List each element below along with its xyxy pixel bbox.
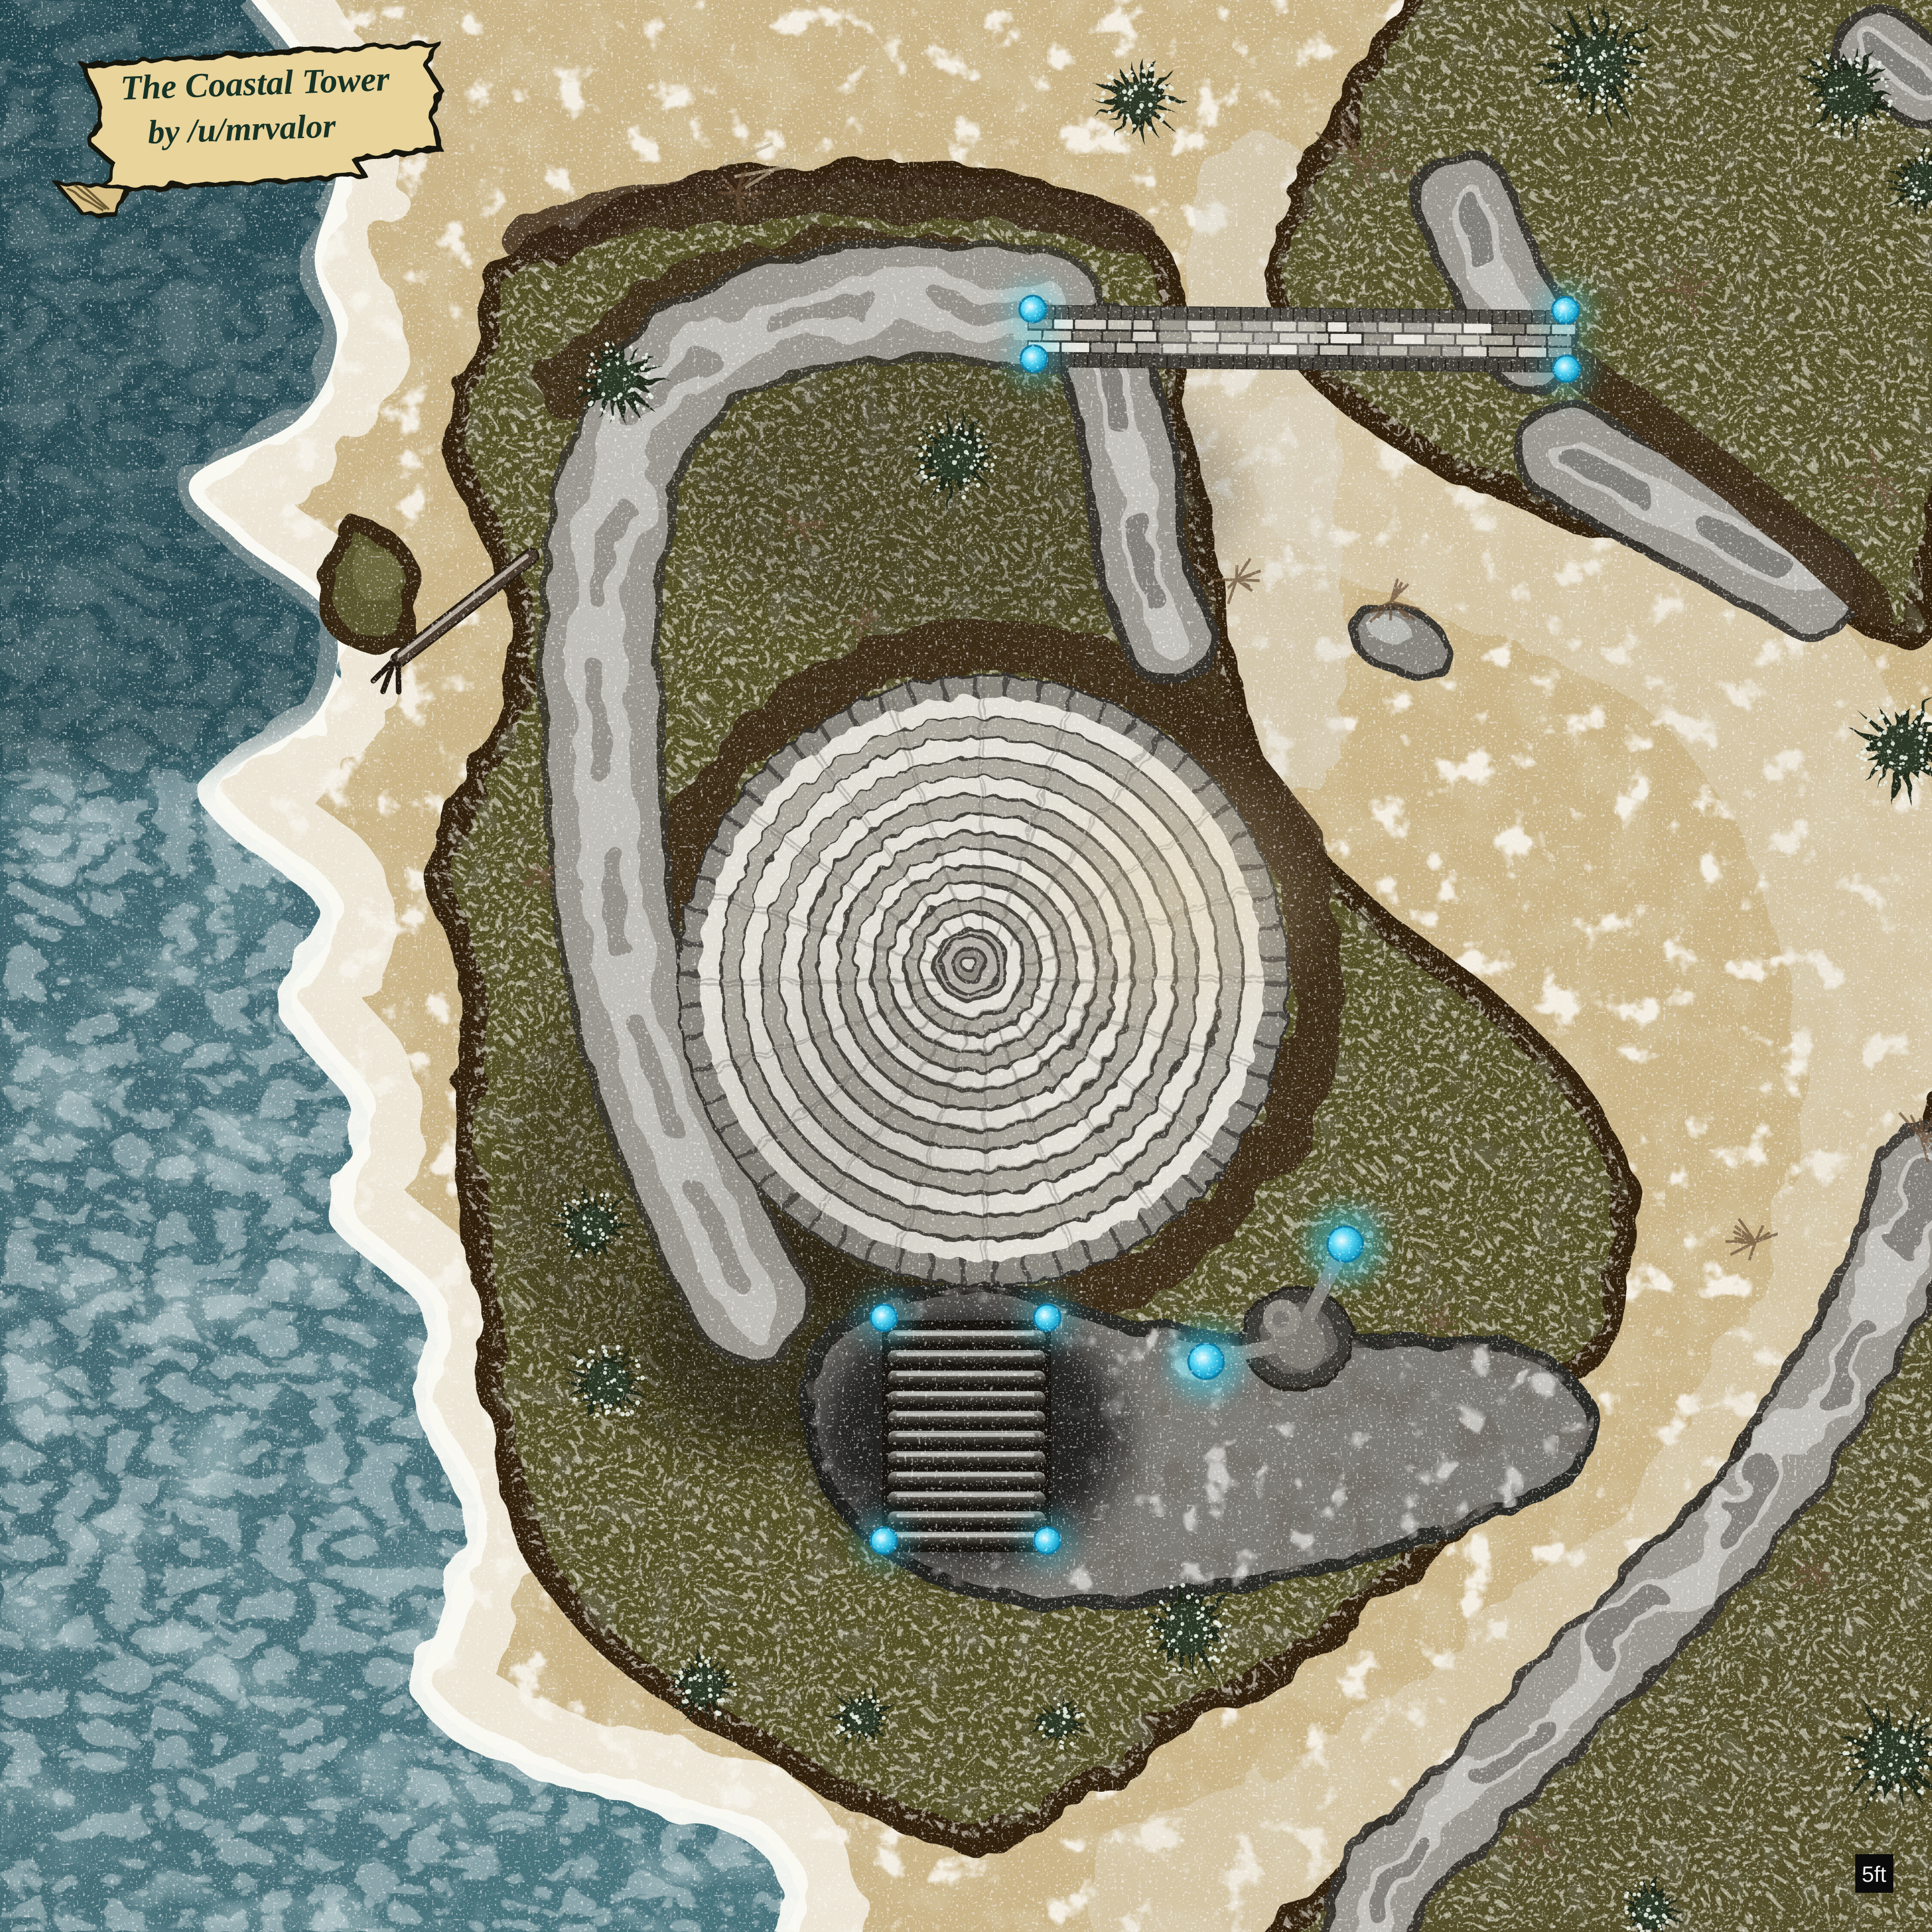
svg-text:by /u/mrvalor: by /u/mrvalor [147,108,337,151]
svg-text:5ft: 5ft [1862,1862,1886,1887]
